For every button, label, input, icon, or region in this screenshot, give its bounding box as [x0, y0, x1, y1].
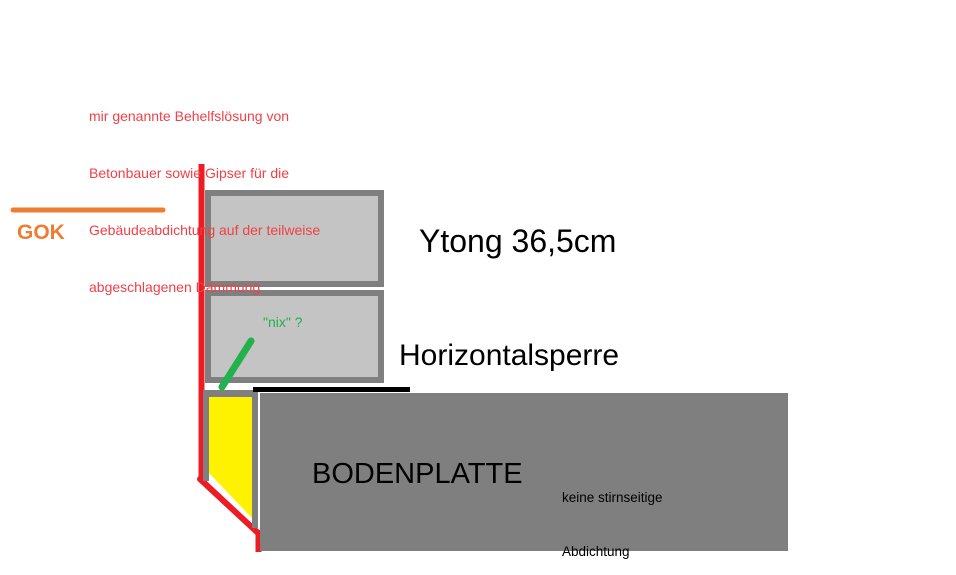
- insulation-daemmung: [209, 397, 252, 518]
- annotation-line: Betonbauer sowie Gipser für die: [89, 164, 320, 183]
- annotation-line: Gebäudeabdichtung auf der teilweise: [89, 221, 320, 240]
- bodenplatte-label: BODENPLATTE: [312, 458, 523, 491]
- nix-label: "nix" ?: [263, 314, 303, 330]
- annotation-line: mir genannte Behelfslösung von: [89, 107, 320, 126]
- annotation-line: abgeschlagenen Dämmung: [89, 278, 320, 297]
- insulation-border-left: [203, 390, 209, 481]
- note-line: keine stirnseitige: [562, 489, 663, 507]
- construction-diagram: mir genannte Behelfslösung von Betonbaue…: [0, 0, 956, 575]
- gok-label: GOK: [17, 221, 65, 245]
- keine-abdichtung-note: keine stirnseitige Abdichtung: [562, 453, 663, 575]
- note-line: Abdichtung: [562, 543, 663, 561]
- annotation-behelfsloesung: mir genannte Behelfslösung von Betonbaue…: [89, 69, 320, 335]
- insulation-border-right: [252, 390, 258, 528]
- ytong-label: Ytong 36,5cm: [419, 223, 616, 260]
- horizontalsperre-label: Horizontalsperre: [399, 339, 619, 373]
